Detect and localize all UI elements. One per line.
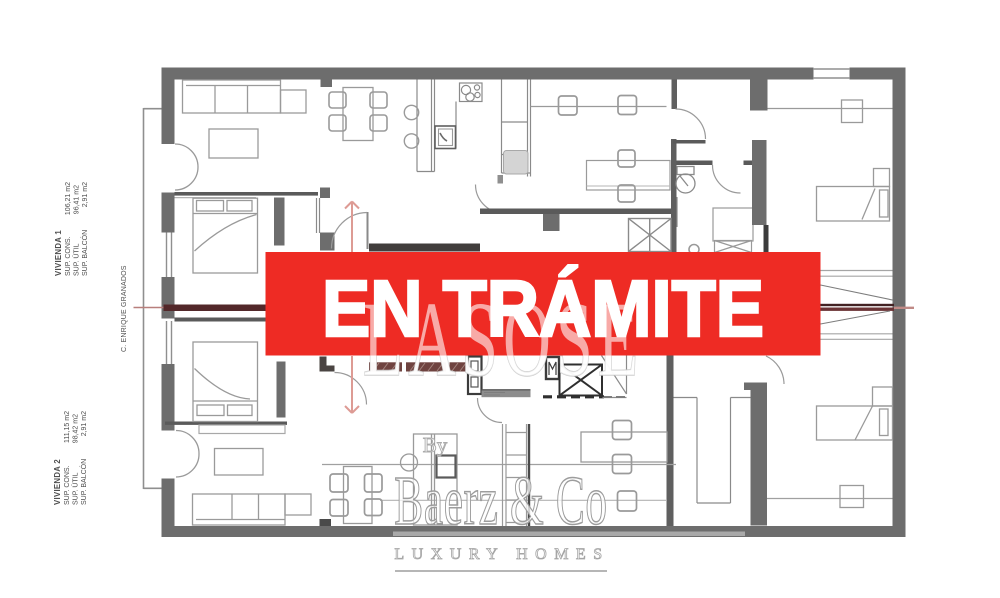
svg-text:96,41 m2: 96,41 m2 xyxy=(74,185,81,214)
svg-text:98,42 m2: 98,42 m2 xyxy=(73,414,80,443)
svg-text:VIVIENDA 1: VIVIENDA 1 xyxy=(54,230,63,276)
svg-text:SUP. CONS.: SUP. CONS. xyxy=(65,236,72,276)
svg-text:2,91 m2: 2,91 m2 xyxy=(82,182,89,207)
svg-text:C. ENRIQUE GRANADOS: C. ENRIQUE GRANADOS xyxy=(121,265,128,352)
svg-text:111,15 m2: 111,15 m2 xyxy=(64,411,71,443)
svg-text:LASOSE: LASOSE xyxy=(363,281,643,399)
svg-text:SUP. CONS.: SUP. CONS. xyxy=(64,465,71,505)
svg-text:2,91 m2: 2,91 m2 xyxy=(81,411,88,436)
svg-text:106,21 m2: 106,21 m2 xyxy=(65,182,72,215)
svg-text:Baerz & Co: Baerz & Co xyxy=(394,461,607,539)
svg-text:SUP. BALCÓN: SUP. BALCÓN xyxy=(80,230,89,276)
svg-text:LUXURY HOMES: LUXURY HOMES xyxy=(394,546,609,563)
svg-text:By: By xyxy=(423,433,448,457)
svg-text:SUP. ÚTIL: SUP. ÚTIL xyxy=(71,472,80,505)
svg-text:SUP. BALCÓN: SUP. BALCÓN xyxy=(79,459,88,505)
svg-text:SUP. ÚTIL: SUP. ÚTIL xyxy=(72,243,81,276)
svg-text:VIVIENDA 2: VIVIENDA 2 xyxy=(53,459,62,505)
